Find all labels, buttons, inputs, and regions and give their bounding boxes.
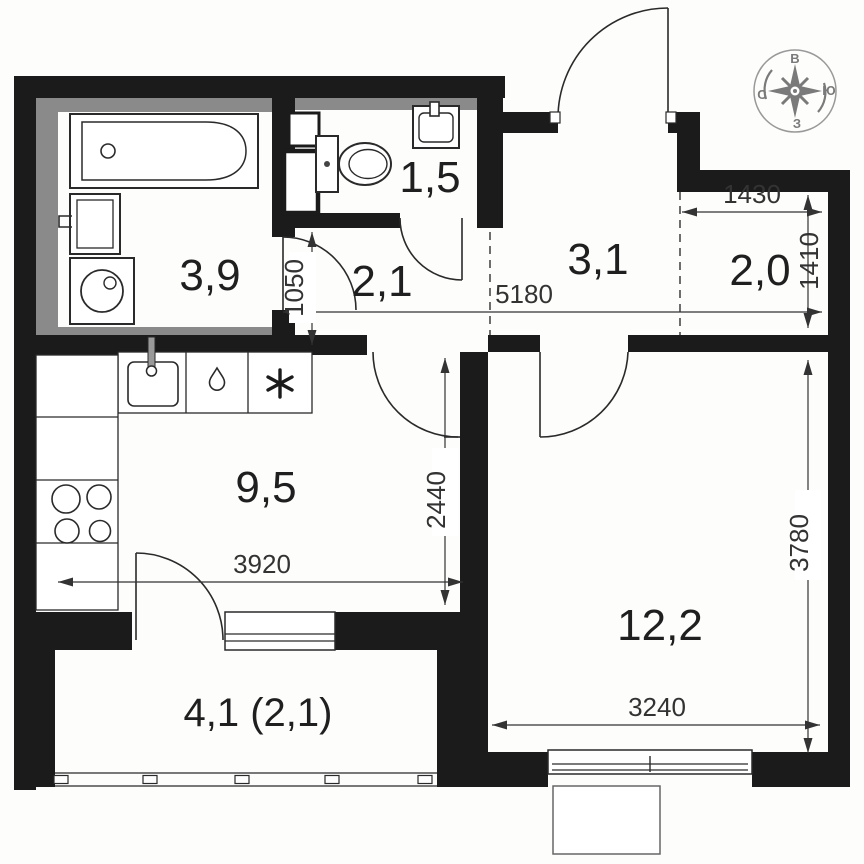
vent-duct-small <box>289 113 319 146</box>
washing-machine-drum <box>81 270 123 312</box>
toilet-flush-button <box>324 161 330 167</box>
dim-label-3780: 3780 <box>784 514 814 572</box>
balcony-glazing-mullions <box>54 776 432 784</box>
wall-living-top-right <box>628 335 850 352</box>
compass-letter-top: В <box>790 51 799 66</box>
window-sill-box <box>553 786 660 854</box>
dim-label-1430: 1430 <box>723 179 781 209</box>
wall-bottom-left-of-window <box>462 752 548 787</box>
compass-hub-dot <box>793 89 797 93</box>
dim-label-3240: 3240 <box>628 692 686 722</box>
shaft-band-top <box>36 98 272 112</box>
balcony-window <box>225 612 335 650</box>
vent-duct-main <box>284 151 318 213</box>
room-label-hall: 3,1 <box>567 235 628 284</box>
entry-frame-tick-right <box>666 112 676 123</box>
dim-label-1410: 1410 <box>794 232 824 290</box>
dim-label-3920: 3920 <box>233 549 291 579</box>
wall-top-left <box>14 76 505 98</box>
corner-sink-tap <box>430 102 439 116</box>
wall-living-top-left <box>488 335 540 352</box>
wall-balcony-right <box>437 612 462 787</box>
dim-label-2440: 2440 <box>421 471 451 529</box>
corner-sink-inner <box>419 113 453 142</box>
floor-plan-page: 1430 1410 5180 1050 2440 3920 3780 3240 <box>0 0 864 864</box>
room-label-wardrobe: 2,0 <box>729 246 790 295</box>
balcony-door-arc <box>136 553 223 640</box>
compass-rose: В Ю З С <box>754 50 836 132</box>
bathtub-drain <box>101 144 115 158</box>
floor-plan: 1430 1410 5180 1050 2440 3920 3780 3240 <box>0 0 864 864</box>
room-label-kitchen: 9,5 <box>235 463 296 512</box>
wall-kitchen-living <box>460 352 488 787</box>
wall-right <box>828 170 850 787</box>
dim-label-1050: 1050 <box>279 259 309 317</box>
kitchen-side-counter <box>36 355 118 610</box>
kitchen-faucet <box>148 337 155 368</box>
compass-letter-right: Ю <box>822 83 835 98</box>
wall-toilet-right <box>477 98 503 228</box>
wall-entry-right-vertical <box>677 133 700 192</box>
compass-letter-bottom: З <box>793 116 801 131</box>
dim-label-5180: 5180 <box>495 279 553 309</box>
wall-balcony-top-left <box>36 612 132 650</box>
wall-balcony-left <box>14 650 55 787</box>
living-door-arc <box>540 352 628 437</box>
room-label-hall-small: 2,1 <box>351 257 412 306</box>
kitchen-faucet-head <box>147 366 157 376</box>
toilet-bowl-inner <box>349 150 387 179</box>
room-label-bathroom: 3,9 <box>179 251 240 300</box>
room-label-living-room: 12,2 <box>617 601 703 650</box>
entry-frame-tick-left <box>550 112 560 123</box>
wall-bottom-right-of-window <box>752 752 850 787</box>
washing-machine-dial <box>104 277 116 289</box>
compass-letter-left: С <box>757 87 767 102</box>
room-label-balcony: 4,1 (2,1) <box>184 691 333 735</box>
bath-sink-inner <box>77 200 113 248</box>
entry-door-arc <box>558 8 668 118</box>
shaft-band-left <box>36 98 58 337</box>
room-label-toilet: 1,5 <box>399 153 460 202</box>
